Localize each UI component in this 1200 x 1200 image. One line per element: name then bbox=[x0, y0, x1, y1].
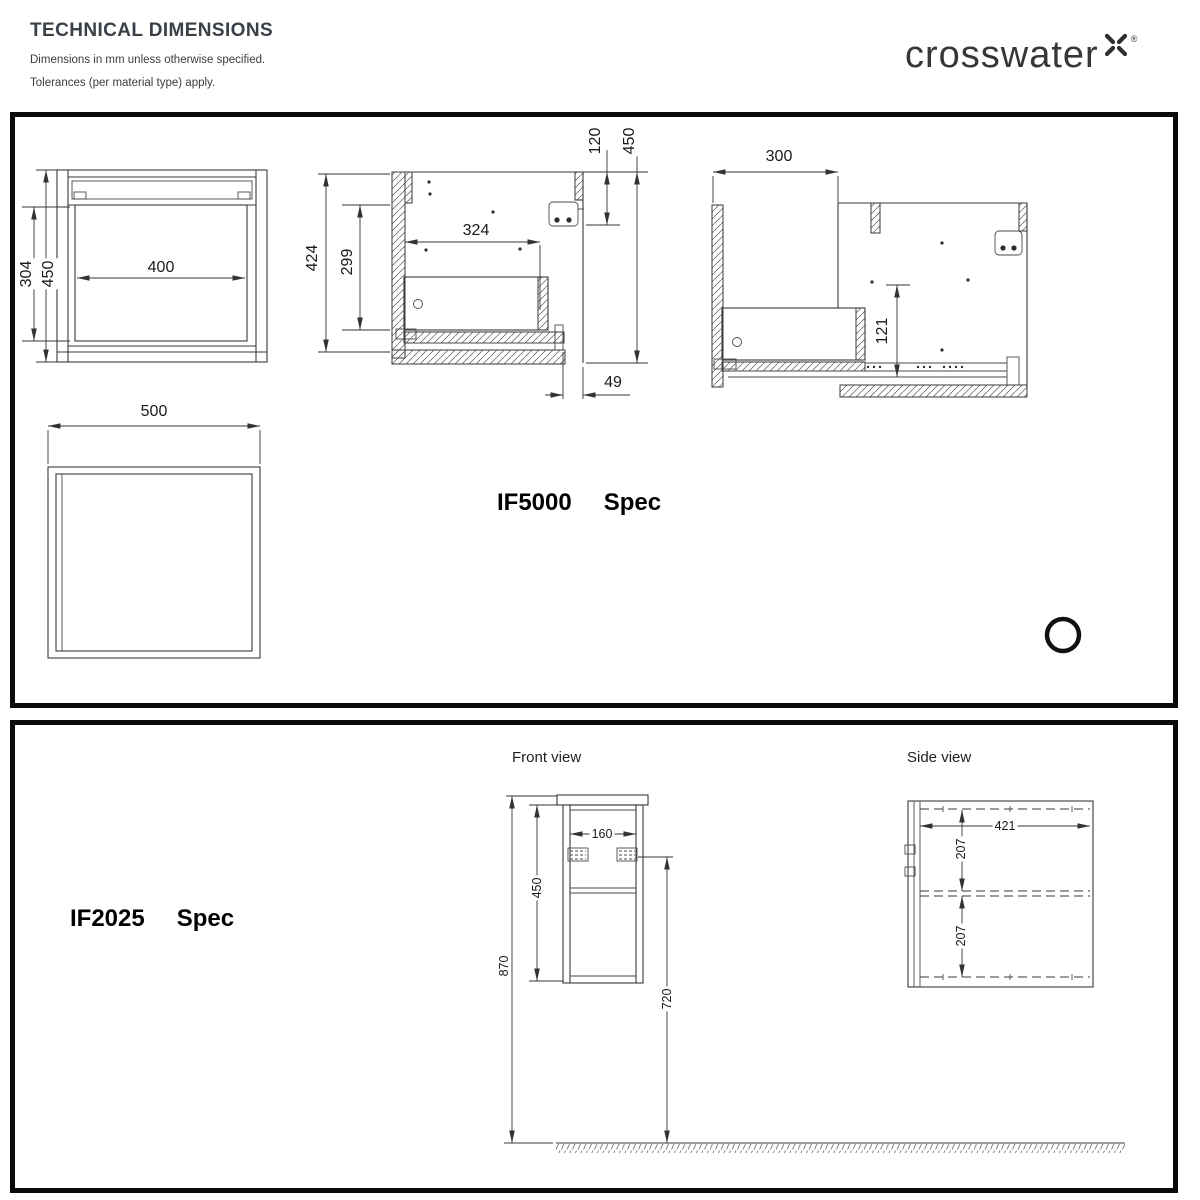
if5000-section-view-drawing bbox=[318, 150, 648, 399]
dim-body-height-424: 424 bbox=[304, 243, 322, 274]
technical-dimensions-sheet: TECHNICAL DIMENSIONS Dimensions in mm un… bbox=[0, 0, 1200, 1200]
if5000-plan-view-drawing bbox=[48, 426, 260, 658]
subtitle-line2: Tolerances (per material type) apply. bbox=[30, 77, 215, 89]
registered-trademark: ® bbox=[1131, 34, 1138, 44]
if2025-panel-border bbox=[13, 723, 1176, 1191]
subtitle-line1: Dimensions in mm unless otherwise specif… bbox=[30, 54, 265, 66]
dim-depth-421: 421 bbox=[993, 819, 1018, 833]
if5000-extended-view-drawing bbox=[712, 172, 1027, 397]
wall-bracket-left bbox=[568, 848, 588, 861]
dim-drawer-depth-121: 121 bbox=[874, 318, 892, 345]
if5000-spec-label: IF5000 Spec bbox=[497, 489, 661, 517]
dim-top-fixing-offset-120: 120 bbox=[587, 126, 605, 157]
dim-cabinet-height-450: 450 bbox=[530, 876, 544, 901]
dim-overall-height-450-front: 450 bbox=[40, 259, 58, 290]
circle-mark bbox=[1047, 619, 1079, 651]
dim-opening-height-304: 304 bbox=[18, 259, 36, 290]
if2025-spec-label: IF2025 Spec bbox=[70, 905, 234, 933]
front-view-label: Front view bbox=[512, 749, 581, 766]
page-title: TECHNICAL DIMENSIONS bbox=[30, 20, 273, 42]
dim-opening-width-400: 400 bbox=[148, 259, 175, 277]
dim-inner-width-324: 324 bbox=[463, 222, 490, 240]
drawing-canvas bbox=[0, 0, 1200, 1200]
if2025-front-view-drawing bbox=[504, 795, 1125, 1153]
dim-lower-section-207: 207 bbox=[954, 924, 968, 949]
slide-rail-bearings bbox=[867, 366, 963, 368]
dim-plinth-recess-49: 49 bbox=[604, 374, 622, 392]
dim-upper-section-207: 207 bbox=[954, 837, 968, 862]
dim-overall-height-450-section: 450 bbox=[621, 126, 639, 157]
side-view-label: Side view bbox=[907, 749, 971, 766]
if2025-spec-word: Spec bbox=[177, 905, 234, 933]
dim-inner-height-299: 299 bbox=[339, 247, 357, 278]
dim-overall-width-500: 500 bbox=[141, 403, 168, 421]
wall-bracket-right bbox=[617, 848, 637, 861]
if5000-spec-word: Spec bbox=[604, 489, 661, 517]
if5000-front-view-drawing bbox=[22, 170, 267, 362]
dim-overall-height-870: 870 bbox=[497, 954, 511, 979]
brand-wordmark: crosswater bbox=[905, 36, 1099, 74]
crosswater-x-icon bbox=[1101, 30, 1131, 60]
dim-fixing-centres-160: 160 bbox=[590, 827, 615, 841]
dim-extension-300: 300 bbox=[766, 148, 793, 166]
floor-line bbox=[504, 1143, 1125, 1153]
if2025-model: IF2025 bbox=[70, 905, 145, 933]
if5000-model: IF5000 bbox=[497, 489, 572, 517]
dim-underside-height-720: 720 bbox=[660, 987, 674, 1012]
crosswater-logo: crosswater ® bbox=[905, 36, 1137, 74]
